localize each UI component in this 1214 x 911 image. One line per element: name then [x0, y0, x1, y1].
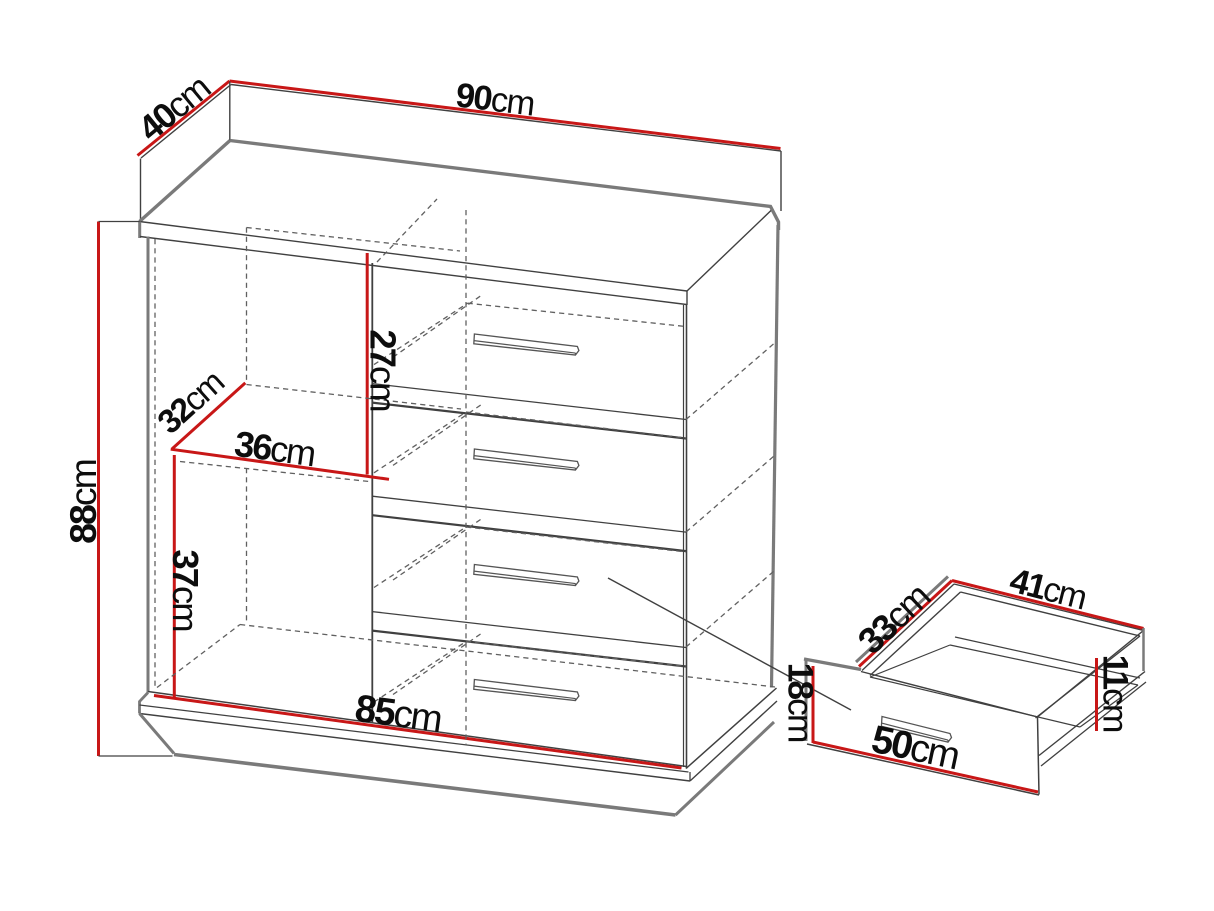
svg-text:37cm: 37cm [165, 549, 206, 630]
svg-text:88cm: 88cm [62, 460, 104, 544]
svg-text:18cm: 18cm [781, 663, 821, 742]
svg-text:11cm: 11cm [1096, 655, 1136, 732]
svg-text:27cm: 27cm [363, 329, 404, 410]
